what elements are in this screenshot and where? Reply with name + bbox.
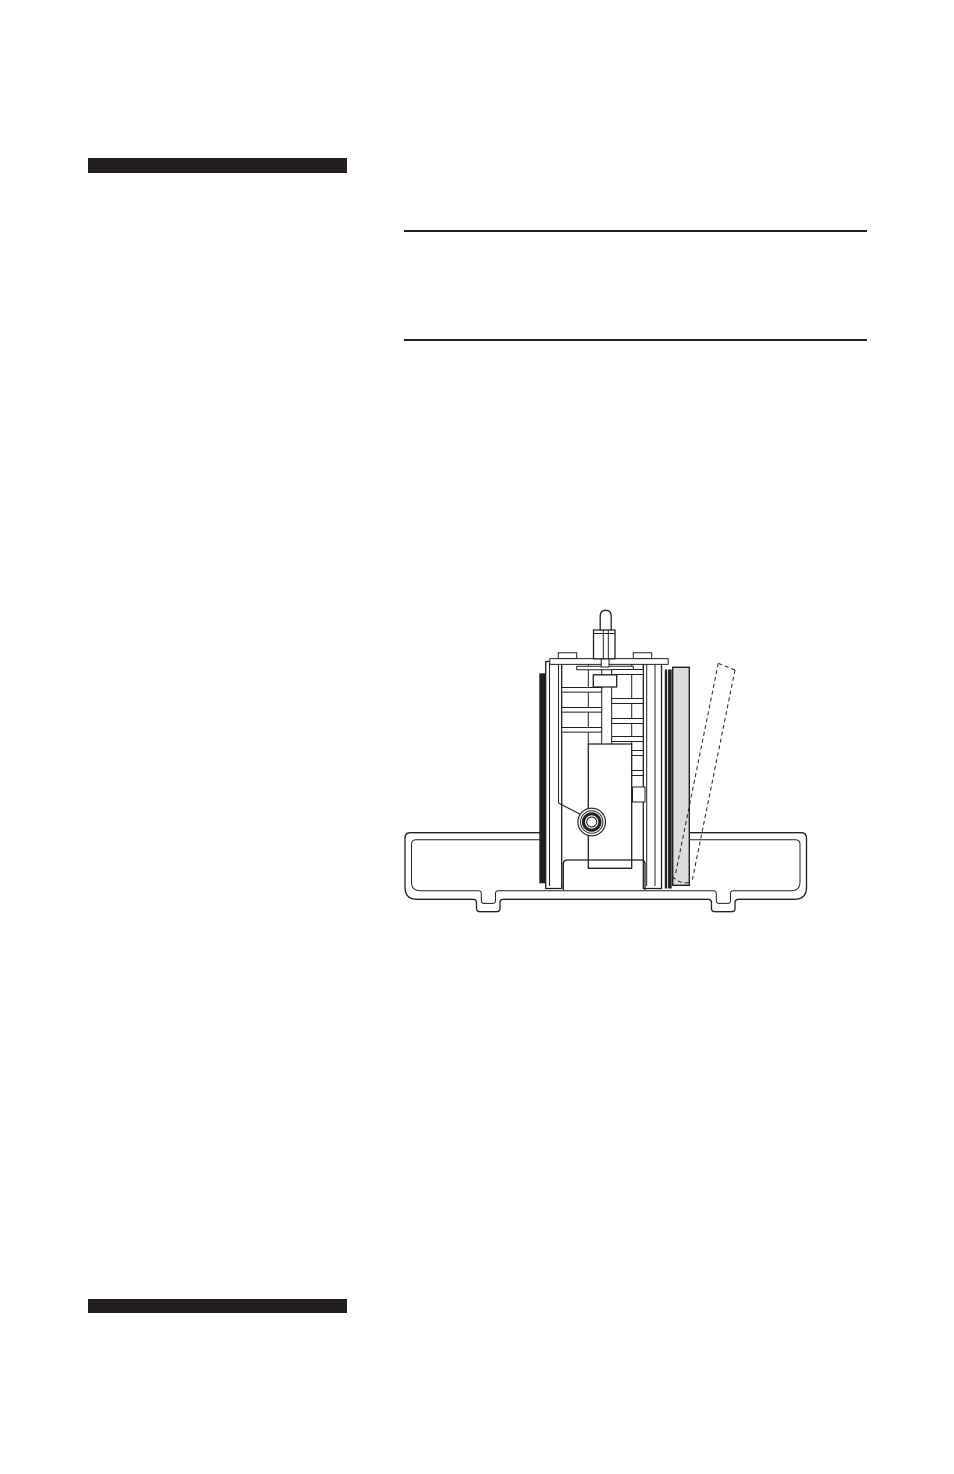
top-section-bar <box>88 158 347 173</box>
base-foot <box>563 860 645 890</box>
plunger-cap <box>600 610 611 630</box>
tray-outer-contour <box>405 833 807 912</box>
right-block <box>633 787 646 802</box>
right-rib-short <box>632 751 644 756</box>
left-rib <box>562 728 602 733</box>
top-plate-left-tab <box>558 653 576 659</box>
right-black-bar-outer <box>665 670 667 889</box>
mechanism-assembly <box>546 610 669 890</box>
dashed-edge-top <box>718 663 735 670</box>
carriage-block <box>588 744 631 868</box>
bottom-section-bar <box>88 1299 347 1313</box>
mounting-tray <box>405 833 807 912</box>
bushing-bore <box>587 817 597 827</box>
left-rib <box>562 708 602 713</box>
horizontal-rule-top <box>404 230 867 232</box>
horizontal-rule-bottom <box>404 339 867 341</box>
top-plate-right-tab <box>633 653 651 659</box>
side-panel-fill <box>673 667 690 885</box>
right-rib-short <box>632 771 644 776</box>
right-rib <box>612 699 644 704</box>
right-rib <box>612 737 644 742</box>
left-black-bar <box>539 673 545 883</box>
plunger-screw <box>594 610 616 659</box>
screw-body <box>594 630 616 659</box>
right-wall <box>643 662 661 889</box>
left-rib <box>562 688 602 693</box>
right-black-bar-inner <box>668 670 672 889</box>
pivot-bushing <box>578 808 606 836</box>
right-rib <box>612 670 644 675</box>
document-page <box>0 0 954 1474</box>
adjuster-nut <box>593 675 616 687</box>
technical-diagram-figure <box>393 598 817 932</box>
side-panel-solid <box>673 667 690 885</box>
cross-section-drawing <box>393 598 817 932</box>
left-wall <box>546 662 562 889</box>
right-rib <box>612 719 644 724</box>
dashed-edge-right <box>692 670 735 882</box>
tray-inner-contour <box>412 840 801 904</box>
